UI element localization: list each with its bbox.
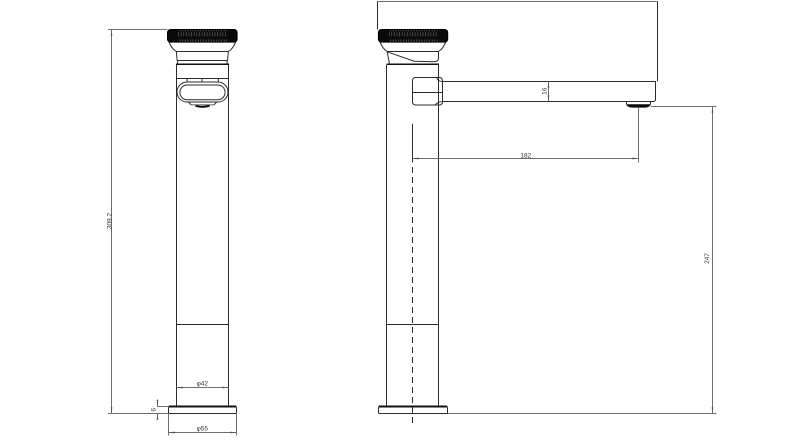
svg-text:φ55: φ55 [197,426,209,433]
svg-text:182: 182 [520,152,531,159]
svg-text:309.2: 309.2 [106,212,113,229]
svg-text:247: 247 [704,253,711,264]
svg-text:16: 16 [542,87,549,95]
svg-text:φ42: φ42 [197,381,209,388]
svg-text:6: 6 [151,408,158,412]
